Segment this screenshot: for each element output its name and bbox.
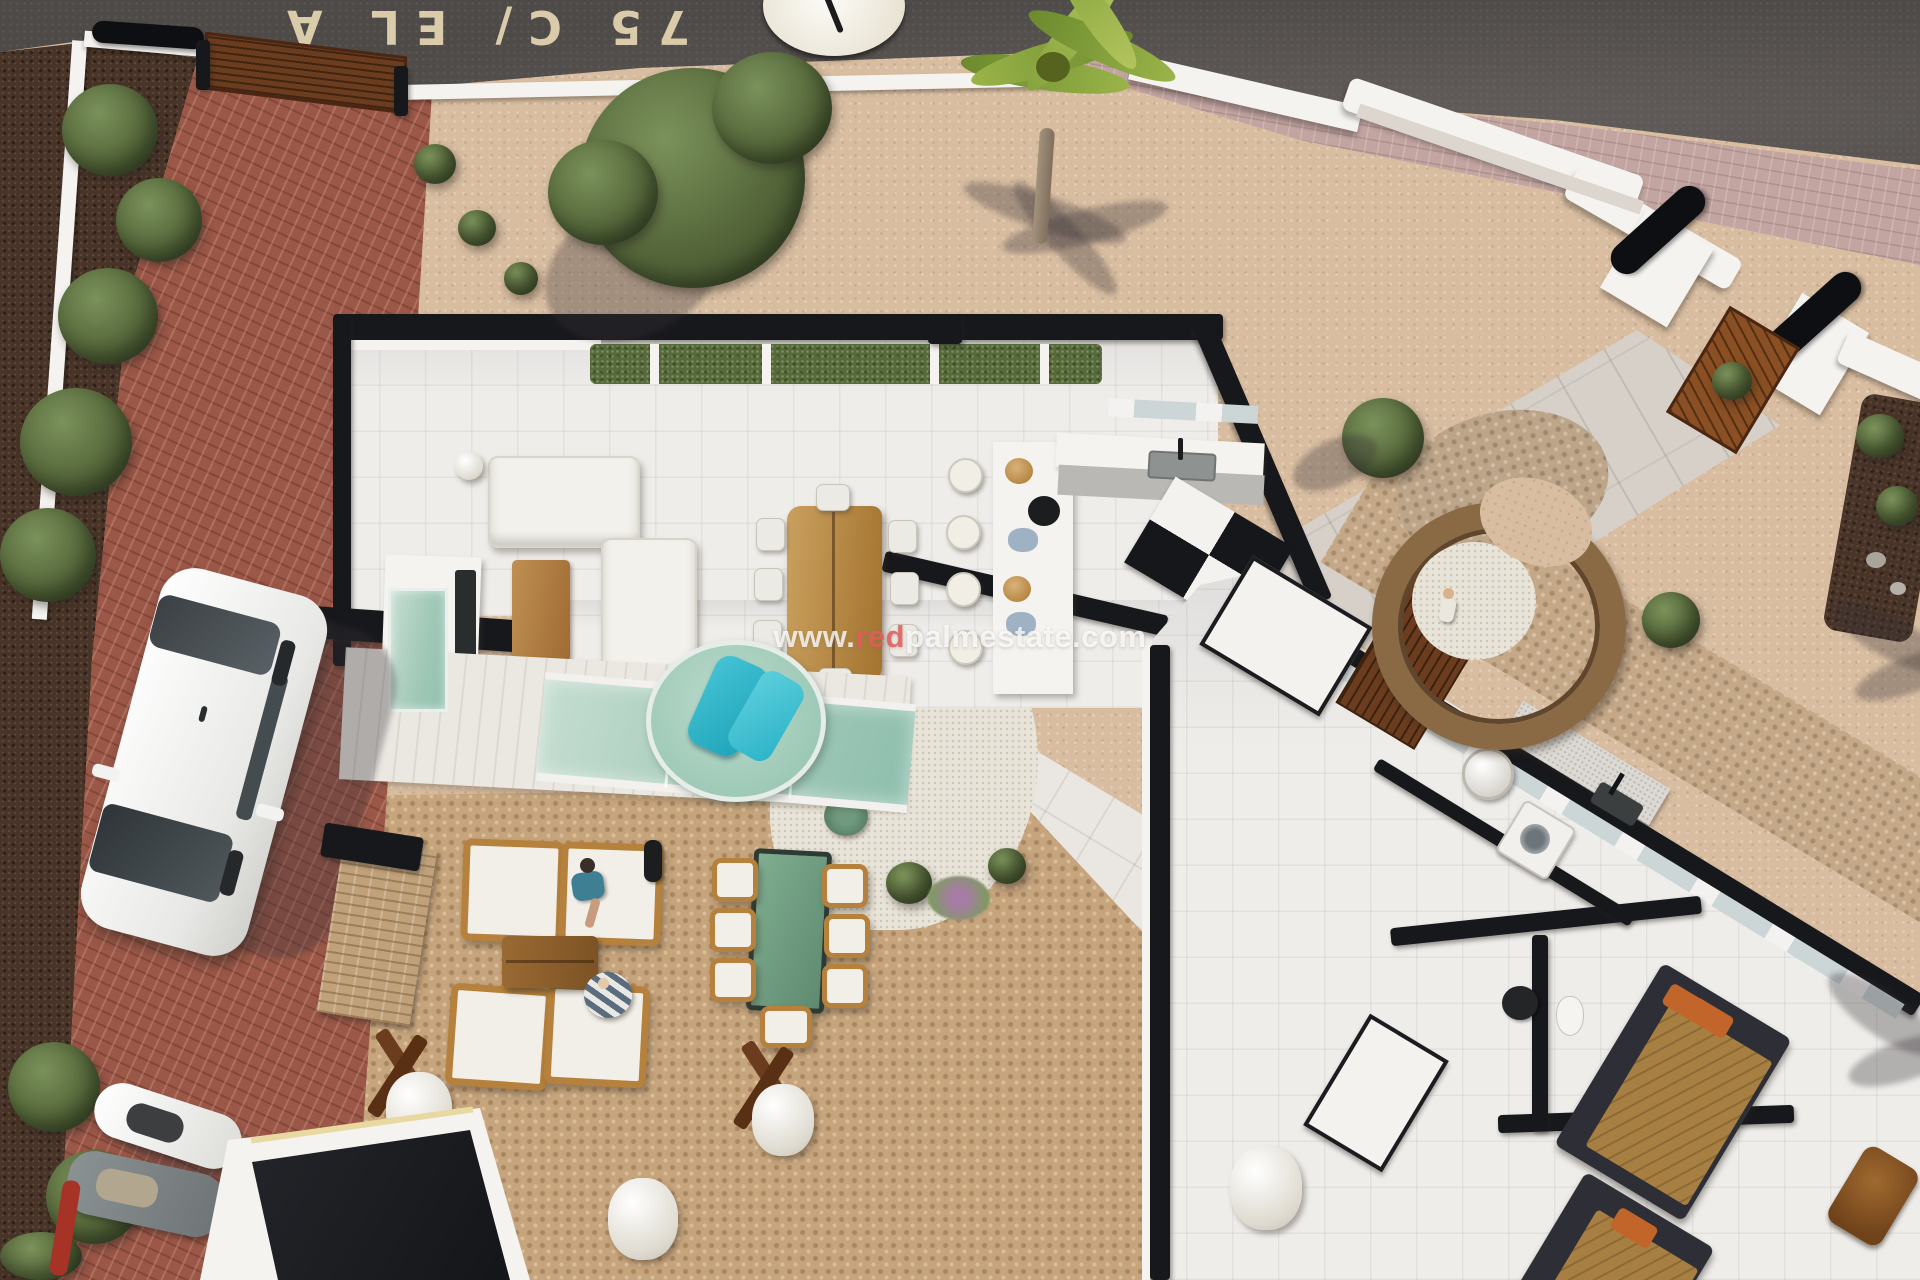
- shrub: [458, 210, 496, 246]
- wooden-bowl: [1005, 458, 1033, 484]
- table-plank-line: [506, 960, 594, 963]
- window-mullion: [650, 344, 659, 384]
- outdoor-dining-chair: [822, 964, 868, 1008]
- woman-figure-body: [570, 870, 606, 902]
- outdoor-armchair: [460, 838, 565, 943]
- watermark-prefix: www.: [774, 619, 856, 654]
- gate-post: [196, 40, 210, 90]
- coffee-table: [512, 560, 570, 662]
- watermark-highlight: red: [855, 619, 905, 654]
- house-top-wall-face: [351, 340, 601, 350]
- palm-crown: [1036, 52, 1070, 82]
- shrub: [414, 144, 456, 184]
- hedge-tree: [8, 1042, 100, 1132]
- purple-flowering-plant: [928, 876, 990, 920]
- hedge-tree: [20, 388, 132, 496]
- black-bowl: [1028, 496, 1060, 526]
- water-heater: [1462, 748, 1514, 800]
- wall-column: [928, 314, 962, 344]
- bar-stool: [946, 572, 981, 607]
- child-beanbag: [584, 972, 632, 1018]
- hedge-tree: [62, 84, 158, 176]
- outdoor-dining-chair: [710, 958, 756, 1002]
- dining-chair: [890, 572, 919, 605]
- house-top-wall: [333, 314, 1223, 340]
- outdoor-dining-chair: [710, 908, 756, 952]
- hedge-tree: [0, 508, 96, 602]
- bush: [1712, 362, 1752, 400]
- outdoor-dining-chair: [822, 864, 868, 908]
- outdoor-dining-chair: [824, 914, 870, 958]
- window-hedge: [590, 344, 1102, 384]
- landscape-rock: [1890, 582, 1906, 595]
- wing-sw-wall: [1150, 645, 1170, 1280]
- outdoor-dining-chair: [760, 1006, 812, 1048]
- large-olive-tree-lobe: [712, 52, 832, 164]
- bath-divider-wall: [1532, 935, 1548, 1131]
- wing-sw-wall-face: [1142, 645, 1150, 1280]
- washer-drum: [1520, 824, 1550, 854]
- woman-figure-head: [580, 858, 595, 873]
- white-planter: [608, 1178, 678, 1260]
- floor-lamp: [455, 452, 483, 480]
- shrub: [1856, 414, 1904, 458]
- wooden-bowl: [1003, 576, 1031, 602]
- dining-chair: [888, 520, 917, 553]
- window-mullion: [762, 344, 771, 384]
- gate-post: [394, 66, 408, 116]
- watermark: www.redpalmestate.com: [660, 612, 1260, 662]
- shrub: [988, 848, 1026, 884]
- shrub: [1876, 486, 1918, 526]
- bush: [1642, 592, 1700, 648]
- dining-chair: [754, 568, 783, 601]
- dining-chair: [756, 518, 785, 551]
- white-planter: [1230, 1146, 1302, 1230]
- child-figure-head: [598, 978, 609, 989]
- dining-chair: [816, 484, 850, 511]
- landscape-rock: [1866, 552, 1886, 568]
- large-olive-tree-lobe: [548, 140, 658, 245]
- watermark-suffix: palmestate.com: [905, 619, 1146, 654]
- hedge-tree: [116, 178, 202, 262]
- bathroom-basin: [1502, 986, 1538, 1020]
- placemat: [1008, 528, 1038, 552]
- outdoor-armchair: [445, 983, 554, 1092]
- street-number: 75: [594, 0, 690, 54]
- aerial-villa-render: 75 C/ EL A: [0, 0, 1920, 1280]
- bar-stool: [946, 515, 981, 550]
- shrub: [504, 262, 538, 295]
- sofa: [488, 456, 640, 548]
- window-mullion: [1040, 344, 1049, 384]
- kitchen-faucet: [1178, 438, 1183, 460]
- outdoor-dining-chair: [712, 858, 758, 902]
- glass-panel: [388, 588, 448, 712]
- outdoor-dining-table: [746, 848, 832, 1014]
- white-planter: [752, 1084, 814, 1156]
- toddler-figure-head: [1443, 588, 1454, 599]
- toilet: [1556, 996, 1584, 1036]
- bar-stool: [948, 458, 983, 493]
- patio-lamp: [644, 840, 662, 882]
- hedge-tree: [58, 268, 158, 364]
- window-mullion: [930, 344, 939, 384]
- shrub: [886, 862, 932, 904]
